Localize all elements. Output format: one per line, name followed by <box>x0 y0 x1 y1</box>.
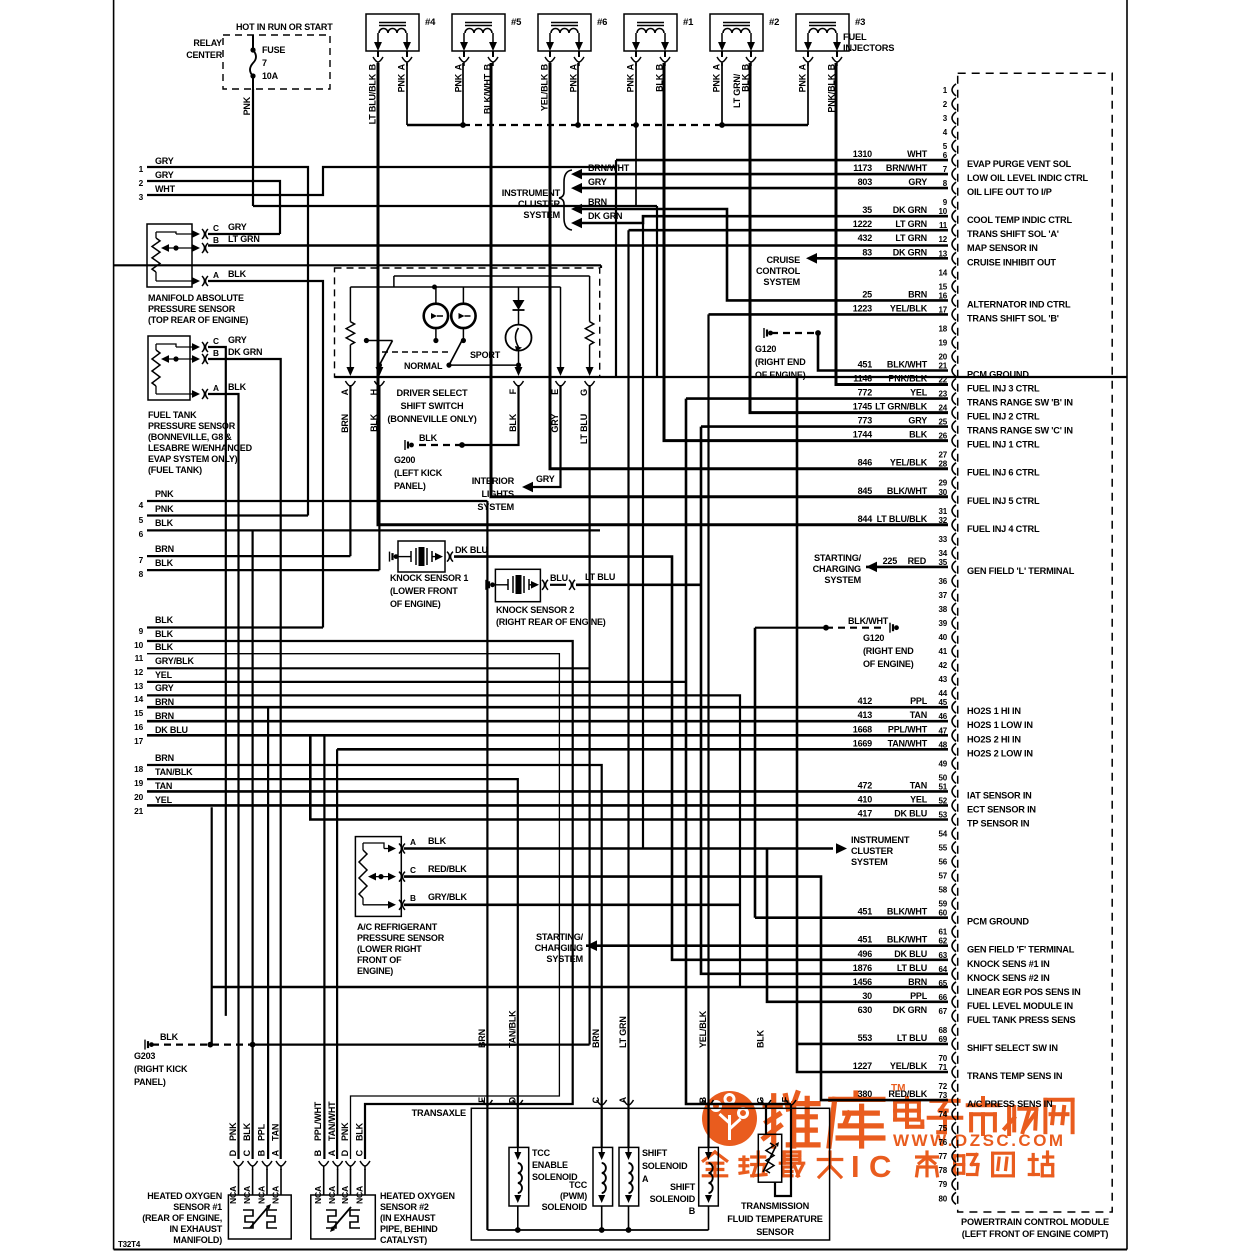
svg-text:INJECTORS: INJECTORS <box>843 43 894 53</box>
svg-text:BLK: BLK <box>369 413 379 432</box>
svg-text:E: E <box>477 1097 487 1103</box>
svg-text:TM: TM <box>891 1083 905 1094</box>
svg-text:225: 225 <box>883 556 898 566</box>
svg-text:BRN: BRN <box>155 711 174 721</box>
svg-text:20: 20 <box>134 792 143 802</box>
svg-text:B: B <box>368 63 378 70</box>
svg-text:FUEL LEVEL MODULE IN: FUEL LEVEL MODULE IN <box>967 1001 1073 1011</box>
svg-text:SOLENOID: SOLENOID <box>542 1202 588 1212</box>
svg-text:553: 553 <box>858 1033 873 1043</box>
svg-text:STARTING/: STARTING/ <box>814 553 862 563</box>
svg-text:45: 45 <box>939 698 948 707</box>
svg-text:G: G <box>756 1097 766 1104</box>
svg-text:EVAP PURGE VENT SOL: EVAP PURGE VENT SOL <box>967 159 1072 169</box>
svg-text:A: A <box>569 63 579 70</box>
svg-text:COOL TEMP INDIC CTRL: COOL TEMP INDIC CTRL <box>967 215 1072 225</box>
svg-text:NCA: NCA <box>242 1186 252 1204</box>
svg-text:A: A <box>454 63 464 70</box>
svg-text:(LOWER FRONT: (LOWER FRONT <box>390 586 458 596</box>
svg-text:16: 16 <box>939 291 948 300</box>
svg-text:A: A <box>213 383 219 393</box>
svg-text:BLK/WHT: BLK/WHT <box>848 616 889 626</box>
svg-text:(REAR OF ENGINE,: (REAR OF ENGINE, <box>142 1213 222 1223</box>
svg-text:YEL: YEL <box>910 794 928 804</box>
svg-text:#4: #4 <box>425 17 436 28</box>
svg-text:SHIFT: SHIFT <box>642 1148 668 1158</box>
svg-text:773: 773 <box>858 416 873 426</box>
svg-text:IAT SENSOR IN: IAT SENSOR IN <box>967 790 1032 800</box>
svg-text:BLK: BLK <box>909 430 928 440</box>
svg-text:PNK: PNK <box>242 96 252 115</box>
svg-text:30: 30 <box>939 488 948 497</box>
svg-text:OF ENGINE): OF ENGINE) <box>755 370 806 380</box>
svg-text:PPL/WHT: PPL/WHT <box>888 724 928 734</box>
svg-text:17: 17 <box>134 736 143 746</box>
svg-text:CLUSTER: CLUSTER <box>518 199 561 209</box>
svg-text:LT GRN: LT GRN <box>895 233 927 243</box>
svg-text:WHT: WHT <box>155 184 176 194</box>
svg-text:INSTRUMENT: INSTRUMENT <box>502 188 561 198</box>
svg-text:GRY: GRY <box>155 156 174 166</box>
svg-text:H: H <box>369 389 379 395</box>
svg-text:BRN: BRN <box>340 414 350 433</box>
svg-text:FUEL INJ 6 CTRL: FUEL INJ 6 CTRL <box>967 468 1040 478</box>
svg-text:451: 451 <box>858 360 873 370</box>
svg-text:FUEL INJ 1 CTRL: FUEL INJ 1 CTRL <box>967 440 1040 450</box>
svg-text:A: A <box>410 837 416 847</box>
svg-text:TAN/BLK: TAN/BLK <box>507 1010 517 1048</box>
svg-text:PNK: PNK <box>228 1122 238 1141</box>
svg-text:MANIFOLD ABSOLUTE: MANIFOLD ABSOLUTE <box>148 293 244 303</box>
svg-text:72: 72 <box>939 1082 948 1091</box>
svg-text:G203: G203 <box>134 1051 155 1061</box>
svg-text:PNK: PNK <box>155 489 174 499</box>
svg-text:GRY: GRY <box>908 416 927 426</box>
svg-text:C: C <box>410 865 416 875</box>
svg-text:B: B <box>213 235 219 245</box>
svg-text:59: 59 <box>939 900 948 909</box>
svg-text:412: 412 <box>858 696 873 706</box>
svg-text:FUSE: FUSE <box>262 45 285 55</box>
svg-text:LT BLU: LT BLU <box>897 963 927 973</box>
svg-text:14: 14 <box>939 268 948 277</box>
svg-text:34: 34 <box>939 549 948 558</box>
svg-text:40: 40 <box>939 633 948 642</box>
svg-text:LT BLU: LT BLU <box>579 414 589 444</box>
svg-text:DK BLU: DK BLU <box>455 545 488 555</box>
svg-text:BRN: BRN <box>908 977 927 987</box>
svg-text:31: 31 <box>939 507 948 516</box>
svg-text:12: 12 <box>939 235 948 244</box>
svg-text:NCA: NCA <box>313 1186 323 1204</box>
svg-text:47: 47 <box>939 726 948 735</box>
svg-text:SENSOR: SENSOR <box>756 1227 794 1237</box>
svg-text:49: 49 <box>939 759 948 768</box>
svg-text:1456: 1456 <box>853 977 872 987</box>
svg-text:PPL: PPL <box>910 696 928 706</box>
svg-text:(BONNEVILLE ONLY): (BONNEVILLE ONLY) <box>387 414 476 424</box>
svg-text:RED/BLK: RED/BLK <box>428 864 467 874</box>
svg-text:18: 18 <box>134 764 143 774</box>
svg-text:DK GRN: DK GRN <box>588 211 622 221</box>
svg-text:10A: 10A <box>262 71 279 81</box>
svg-text:A: A <box>327 1149 337 1156</box>
svg-text:LT GRN/BLK: LT GRN/BLK <box>875 402 928 412</box>
svg-text:15: 15 <box>939 282 948 291</box>
svg-text:YEL/BLK: YEL/BLK <box>890 1061 928 1071</box>
svg-text:413: 413 <box>858 710 873 720</box>
svg-text:17: 17 <box>939 305 948 314</box>
svg-text:SOLENOID: SOLENOID <box>650 1194 696 1204</box>
svg-text:OIL LIFE OUT TO I/P: OIL LIFE OUT TO I/P <box>967 187 1052 197</box>
svg-text:DK GRN: DK GRN <box>893 1005 927 1015</box>
svg-text:B: B <box>689 1206 696 1216</box>
svg-text:13: 13 <box>939 249 948 258</box>
svg-text:BLU: BLU <box>550 573 568 583</box>
svg-text:DK GRN: DK GRN <box>893 205 927 215</box>
svg-text:I: I <box>851 1149 860 1184</box>
svg-text:472: 472 <box>858 780 873 790</box>
svg-text:TRANS SHIFT SOL 'B': TRANS SHIFT SOL 'B' <box>967 313 1059 323</box>
svg-text:FUEL: FUEL <box>843 32 867 42</box>
svg-text:1222: 1222 <box>853 219 872 229</box>
svg-text:BLK: BLK <box>155 615 174 625</box>
svg-text:SYSTEM: SYSTEM <box>523 210 560 220</box>
svg-text:BLK: BLK <box>155 558 174 568</box>
svg-text:BLK: BLK <box>428 836 447 846</box>
svg-text:PNK/BLK: PNK/BLK <box>888 374 927 384</box>
svg-text:24: 24 <box>939 404 948 413</box>
svg-text:9: 9 <box>139 626 144 636</box>
svg-text:TAN: TAN <box>271 1124 281 1141</box>
svg-text:12: 12 <box>134 667 143 677</box>
svg-text:FUEL TANK: FUEL TANK <box>148 410 197 420</box>
svg-text:TRANS RANGE SW 'C' IN: TRANS RANGE SW 'C' IN <box>967 426 1073 436</box>
svg-text:29: 29 <box>939 479 948 488</box>
svg-text:61: 61 <box>939 928 948 937</box>
svg-text:INTERIOR: INTERIOR <box>472 476 515 486</box>
svg-text:GRY: GRY <box>536 474 555 484</box>
svg-text:TRANS RANGE SW 'B' IN: TRANS RANGE SW 'B' IN <box>967 398 1073 408</box>
svg-text:451: 451 <box>858 907 873 917</box>
svg-text:62: 62 <box>939 937 948 946</box>
svg-text:#3: #3 <box>855 17 865 28</box>
svg-text:LT GRN: LT GRN <box>618 1016 628 1048</box>
svg-text:25: 25 <box>939 418 948 427</box>
svg-text:19: 19 <box>939 338 948 347</box>
svg-text:SHIFT SELECT SW IN: SHIFT SELECT SW IN <box>967 1043 1058 1053</box>
svg-text:RED: RED <box>908 556 927 566</box>
svg-text:A: A <box>642 1174 649 1184</box>
svg-text:64: 64 <box>939 965 948 974</box>
svg-text:BLK: BLK <box>419 433 438 443</box>
svg-text:BRN/WHT: BRN/WHT <box>588 163 630 173</box>
svg-text:1745: 1745 <box>853 402 872 412</box>
svg-text:6: 6 <box>139 529 144 539</box>
svg-text:PPL: PPL <box>910 991 928 1001</box>
svg-text:BRN: BRN <box>588 197 607 207</box>
svg-text:BRN: BRN <box>908 289 927 299</box>
svg-text:SPORT: SPORT <box>470 350 501 360</box>
svg-text:A: A <box>213 270 219 280</box>
svg-text:51: 51 <box>939 782 948 791</box>
svg-text:HEATED OXYGEN: HEATED OXYGEN <box>380 1191 455 1201</box>
svg-text:HO2S 1 LOW IN: HO2S 1 LOW IN <box>967 720 1033 730</box>
svg-text:PRESSURE SENSOR: PRESSURE SENSOR <box>148 421 236 431</box>
svg-text:BLK: BLK <box>242 1122 252 1141</box>
svg-text:B: B <box>313 1149 323 1156</box>
svg-text:PNK: PNK <box>340 1122 350 1141</box>
svg-text:#6: #6 <box>597 17 607 28</box>
svg-text:LOW OIL LEVEL INDIC CTRL: LOW OIL LEVEL INDIC CTRL <box>967 173 1089 183</box>
svg-text:DK BLU: DK BLU <box>894 949 927 959</box>
svg-text:A: A <box>397 63 407 70</box>
svg-text:PNK: PNK <box>798 73 808 92</box>
svg-text:YEL/BLK: YEL/BLK <box>890 458 928 468</box>
svg-text:46: 46 <box>939 712 948 721</box>
svg-text:3: 3 <box>139 192 144 202</box>
svg-text:GRY: GRY <box>228 222 247 232</box>
svg-text:PANEL): PANEL) <box>134 1077 166 1087</box>
svg-text:B: B <box>213 348 219 358</box>
svg-text:TRANS SHIFT SOL 'A': TRANS SHIFT SOL 'A' <box>967 229 1059 239</box>
svg-text:803: 803 <box>858 177 873 187</box>
svg-text:8: 8 <box>139 569 144 579</box>
svg-text:57: 57 <box>939 872 948 881</box>
svg-text:BLK: BLK <box>160 1032 179 1042</box>
svg-text:PRESSURE SENSOR: PRESSURE SENSOR <box>148 304 236 314</box>
svg-text:417: 417 <box>858 809 873 819</box>
svg-text:A/C REFRIGERANT: A/C REFRIGERANT <box>357 922 438 932</box>
svg-text:38: 38 <box>939 605 948 614</box>
svg-text:77: 77 <box>939 1152 948 1161</box>
svg-text:TAN: TAN <box>910 710 927 720</box>
svg-text:21: 21 <box>134 806 143 816</box>
svg-text:YEL: YEL <box>155 670 173 680</box>
svg-text:44: 44 <box>939 689 948 698</box>
svg-text:PCM GROUND: PCM GROUND <box>967 370 1029 380</box>
svg-text:LT BLU: LT BLU <box>585 572 615 582</box>
svg-text:43: 43 <box>939 675 948 684</box>
svg-text:HOT IN RUN OR START: HOT IN RUN OR START <box>236 22 333 32</box>
svg-text:GRY/BLK: GRY/BLK <box>428 892 467 902</box>
svg-text:(TOP REAR OF ENGINE): (TOP REAR OF ENGINE) <box>148 315 248 325</box>
svg-text:ENGINE): ENGINE) <box>357 966 393 976</box>
svg-text:HO2S 1 HI IN: HO2S 1 HI IN <box>967 706 1021 716</box>
svg-text:SHIFT: SHIFT <box>670 1182 696 1192</box>
svg-text:63: 63 <box>939 951 948 960</box>
svg-text:33: 33 <box>939 535 948 544</box>
svg-text:1310: 1310 <box>853 149 872 159</box>
svg-text:CHARGING: CHARGING <box>813 564 861 574</box>
svg-text:10: 10 <box>134 640 143 650</box>
svg-text:70: 70 <box>939 1054 948 1063</box>
svg-text:INSTRUMENT: INSTRUMENT <box>851 835 910 845</box>
svg-text:410: 410 <box>858 794 873 804</box>
svg-text:432: 432 <box>858 233 873 243</box>
svg-text:EVAP SYSTEM ONLY): EVAP SYSTEM ONLY) <box>148 454 238 464</box>
svg-text:NORMAL: NORMAL <box>404 361 443 371</box>
svg-text:FUEL INJ 2 CTRL: FUEL INJ 2 CTRL <box>967 412 1040 422</box>
svg-text:A: A <box>712 63 722 70</box>
svg-text:18: 18 <box>939 324 948 333</box>
svg-text:BLK: BLK <box>508 413 518 432</box>
svg-text:A: A <box>626 63 636 70</box>
svg-text:BRN: BRN <box>155 544 174 554</box>
svg-text:MANIFOLD): MANIFOLD) <box>173 1235 222 1245</box>
svg-text:4: 4 <box>139 500 144 510</box>
svg-text:FUEL INJ 3 CTRL: FUEL INJ 3 CTRL <box>967 384 1040 394</box>
svg-text:YEL/BLK: YEL/BLK <box>698 1010 708 1048</box>
svg-text:60: 60 <box>939 909 948 918</box>
svg-text:LT GRN: LT GRN <box>228 234 260 244</box>
svg-text:TRANS TEMP SENS IN: TRANS TEMP SENS IN <box>967 1071 1063 1081</box>
svg-text:BLK: BLK <box>155 518 174 528</box>
svg-text:SYSTEM: SYSTEM <box>824 575 861 585</box>
svg-text:FLUID TEMPERATURE: FLUID TEMPERATURE <box>727 1214 823 1224</box>
svg-text:PNK: PNK <box>454 73 464 92</box>
svg-text:(PWM): (PWM) <box>560 1191 587 1201</box>
svg-text:35: 35 <box>939 558 948 567</box>
svg-text:GRY: GRY <box>155 683 174 693</box>
svg-text:TRANSMISSION: TRANSMISSION <box>741 1201 810 1211</box>
svg-text:10: 10 <box>939 207 948 216</box>
svg-text:LT BLU/BLK: LT BLU/BLK <box>368 73 378 124</box>
svg-text:50: 50 <box>939 773 948 782</box>
svg-text:ECT SENSOR IN: ECT SENSOR IN <box>967 804 1036 814</box>
svg-text:GEN FIELD 'L' TERMINAL: GEN FIELD 'L' TERMINAL <box>967 566 1075 576</box>
svg-text:NCA: NCA <box>327 1186 337 1204</box>
svg-text:35: 35 <box>862 205 872 215</box>
svg-text:39: 39 <box>939 619 948 628</box>
svg-text:30: 30 <box>862 991 872 1001</box>
svg-text:SYSTEM: SYSTEM <box>477 502 514 512</box>
svg-text:19: 19 <box>134 778 143 788</box>
svg-text:37: 37 <box>939 591 948 600</box>
svg-text:PRESSURE SENSOR: PRESSURE SENSOR <box>357 933 445 943</box>
svg-text:GRY: GRY <box>228 335 247 345</box>
svg-text:(RIGHT END: (RIGHT END <box>863 646 914 656</box>
svg-text:1146: 1146 <box>853 374 872 384</box>
svg-text:C: C <box>213 336 219 346</box>
svg-text:80: 80 <box>939 1194 948 1203</box>
svg-text:58: 58 <box>939 886 948 895</box>
svg-text:41: 41 <box>939 647 948 656</box>
svg-text:FUEL INJ 5 CTRL: FUEL INJ 5 CTRL <box>967 496 1040 506</box>
svg-text:LT BLU: LT BLU <box>897 1033 927 1043</box>
svg-text:RELAY: RELAY <box>193 38 222 48</box>
svg-text:NCA: NCA <box>271 1186 281 1204</box>
svg-text:56: 56 <box>939 858 948 867</box>
svg-text:26: 26 <box>939 432 948 441</box>
svg-text:1669: 1669 <box>853 738 872 748</box>
svg-text:25: 25 <box>862 289 872 299</box>
svg-text:(BONNEVILLE, G8 &: (BONNEVILLE, G8 & <box>148 432 232 442</box>
svg-text:BRN: BRN <box>155 697 174 707</box>
svg-text:OF ENGINE): OF ENGINE) <box>390 599 441 609</box>
svg-text:5: 5 <box>139 515 144 525</box>
svg-text:D: D <box>340 1149 350 1156</box>
svg-text:CRUISE INHIBIT OUT: CRUISE INHIBIT OUT <box>967 257 1056 267</box>
svg-text:TAN: TAN <box>155 781 172 791</box>
svg-text:#5: #5 <box>511 17 522 28</box>
svg-text:BLK/WHT: BLK/WHT <box>887 360 928 370</box>
svg-text:(LEFT KICK: (LEFT KICK <box>394 468 443 478</box>
svg-text:1227: 1227 <box>853 1061 872 1071</box>
svg-text:67: 67 <box>939 1007 948 1016</box>
svg-text:SYSTEM: SYSTEM <box>851 857 888 867</box>
svg-text:BRN/WHT: BRN/WHT <box>886 163 928 173</box>
svg-text:PPL/WHT: PPL/WHT <box>313 1101 323 1141</box>
svg-text:SENSOR #1: SENSOR #1 <box>173 1202 222 1212</box>
svg-text:WHT: WHT <box>907 149 928 159</box>
svg-text:(RIGHT KICK: (RIGHT KICK <box>134 1064 188 1074</box>
svg-text:52: 52 <box>939 796 948 805</box>
svg-text:(LOWER RIGHT: (LOWER RIGHT <box>357 944 422 954</box>
svg-text:SYSTEM: SYSTEM <box>763 277 800 287</box>
svg-text:NCA: NCA <box>340 1186 350 1204</box>
svg-text:GRY/BLK: GRY/BLK <box>155 656 194 666</box>
svg-text:1744: 1744 <box>853 430 872 440</box>
svg-text:FRONT OF: FRONT OF <box>357 955 402 965</box>
svg-text:BLK: BLK <box>756 1029 766 1048</box>
svg-text:PNK: PNK <box>569 73 579 92</box>
svg-text:451: 451 <box>858 935 873 945</box>
svg-text:42: 42 <box>939 661 948 670</box>
svg-text:SYSTEM: SYSTEM <box>546 954 583 964</box>
svg-text:C: C <box>591 1096 601 1103</box>
svg-text:BLK: BLK <box>355 1122 365 1141</box>
svg-text:BLK: BLK <box>228 269 247 279</box>
svg-text:YEL: YEL <box>155 795 173 805</box>
svg-text:KNOCK SENSOR 2: KNOCK SENSOR 2 <box>496 605 574 615</box>
svg-text:STARTING/: STARTING/ <box>536 932 584 942</box>
svg-text:B: B <box>540 63 550 70</box>
svg-text:11: 11 <box>135 653 144 663</box>
svg-text:#2: #2 <box>769 17 779 28</box>
svg-text:1173: 1173 <box>853 163 872 173</box>
svg-text:YEL/BLK: YEL/BLK <box>890 303 928 313</box>
svg-text:GRY: GRY <box>908 177 927 187</box>
svg-text:CRUISE: CRUISE <box>766 255 800 265</box>
svg-text:YEL/BLK: YEL/BLK <box>540 73 550 111</box>
svg-text:TAN/BLK: TAN/BLK <box>155 767 193 777</box>
svg-text:DRIVER SELECT: DRIVER SELECT <box>397 388 468 398</box>
svg-text:NCA: NCA <box>355 1186 365 1204</box>
svg-text:1876: 1876 <box>853 963 872 973</box>
svg-text:C: C <box>355 1149 365 1156</box>
svg-text:MAP SENSOR IN: MAP SENSOR IN <box>967 243 1038 253</box>
svg-text:844: 844 <box>858 514 873 524</box>
svg-text:846: 846 <box>858 458 873 468</box>
svg-text:TCC: TCC <box>532 1148 551 1158</box>
svg-text:LIGHTS: LIGHTS <box>482 489 515 499</box>
svg-text:1668: 1668 <box>853 724 872 734</box>
svg-text:27: 27 <box>939 451 948 460</box>
svg-text:HO2S 2 HI IN: HO2S 2 HI IN <box>967 734 1021 744</box>
svg-text:NCA: NCA <box>257 1186 267 1204</box>
svg-text:BRN: BRN <box>477 1029 487 1048</box>
svg-text:IN EXHAUST: IN EXHAUST <box>169 1224 222 1234</box>
svg-text:GRY: GRY <box>550 414 560 433</box>
svg-text:LT GRN: LT GRN <box>895 219 927 229</box>
svg-text:C: C <box>242 1149 252 1156</box>
svg-text:CENTER: CENTER <box>186 50 223 60</box>
svg-text:D: D <box>507 1096 517 1103</box>
svg-text:KNOCK SENS #1 IN: KNOCK SENS #1 IN <box>967 959 1050 969</box>
svg-text:BRN: BRN <box>155 753 174 763</box>
svg-text:83: 83 <box>862 247 872 257</box>
